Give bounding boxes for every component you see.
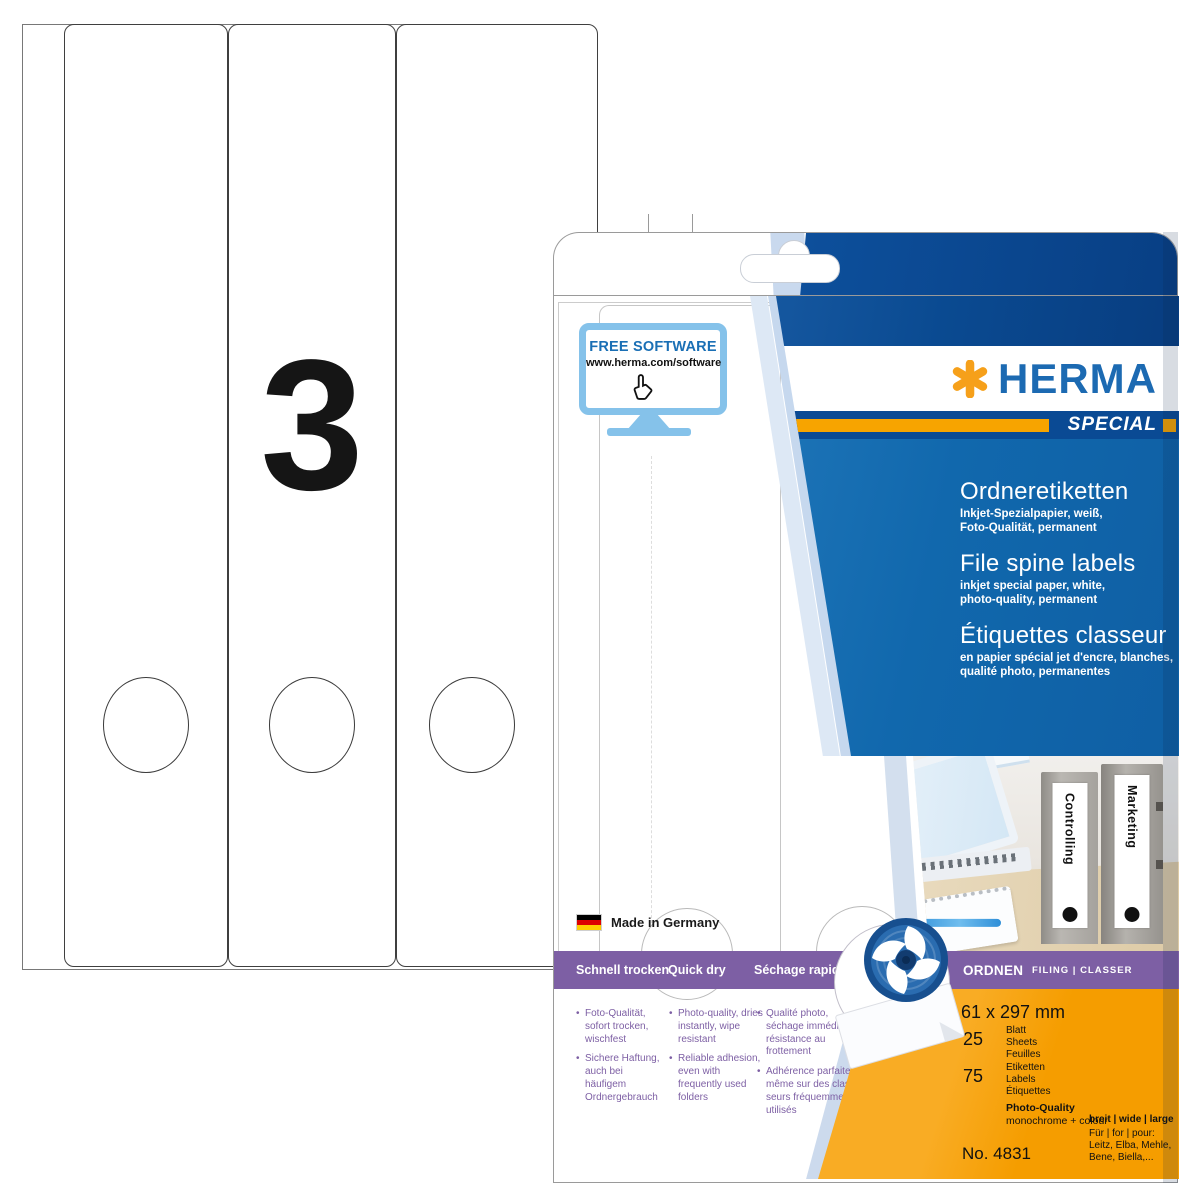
sheet-count: 25	[963, 1029, 983, 1050]
category-rest: FILING | CLASSER	[1032, 951, 1132, 989]
binder-marketing: Marketing	[1101, 764, 1163, 944]
quality-title: Photo-Quality	[1006, 1102, 1075, 1114]
paper-fold	[939, 1016, 964, 1041]
made-in-germany: Made in Germany	[576, 914, 719, 930]
photo-binders: Controlling Marketing	[1041, 764, 1163, 944]
binder-spine-text: Controlling	[1063, 793, 1077, 905]
hang-tab	[553, 232, 1178, 296]
brand-name: HERMA	[998, 358, 1157, 400]
label-sheet: 3	[22, 24, 564, 970]
label-count-label: Etiketten Labels Étiquettes	[1006, 1062, 1050, 1097]
bullets-en: Photo-quality, dries instantly, wipe res…	[669, 1008, 763, 1112]
inner-sheet-edge	[648, 214, 649, 232]
sheet-count-number: 3	[228, 333, 396, 519]
compatibility-info: Für | for | pour: Leitz, Elba, Mehle, Be…	[1089, 1128, 1171, 1165]
inner-sheet-edge	[692, 214, 693, 232]
width-info: breit | wide | large	[1089, 1114, 1174, 1125]
category-main: ORDNEN	[963, 951, 1023, 989]
subtitle-fr: en papier spécial jet d'encre, blanches,…	[960, 652, 1173, 680]
bullets-de: Foto-Qualität, sofort trocken, wischfest…	[576, 1008, 666, 1112]
tab-navy-panel	[554, 233, 1178, 296]
quickdry-fr: Séchage rapide	[754, 951, 846, 989]
binder-spine-dot	[1062, 907, 1077, 922]
binder-spine-dot	[1125, 907, 1140, 922]
binder-spine-text: Marketing	[1125, 785, 1139, 897]
subtitle-en: inkjet special paper, white, photo-quali…	[960, 580, 1173, 608]
quickdry-en: Quick dry	[668, 951, 726, 989]
inner-sheet-left-edge	[558, 302, 559, 953]
binder-slot	[1156, 802, 1163, 811]
free-software-title: FREE SOFTWARE	[586, 339, 720, 355]
subtitle-de: Inkjet-Spezialpapier, weiß, Foto-Qualitä…	[960, 508, 1173, 536]
quickdry-de: Schnell trocken	[576, 951, 669, 989]
herma-logo: HERMA	[951, 358, 1157, 400]
finger-hole-2	[269, 677, 355, 773]
label-size: 61 x 297 mm	[961, 1002, 1065, 1023]
bullet-item: Sichere Haftung, auch bei häufigem Ordne…	[576, 1053, 666, 1104]
made-in-germany-label: Made in Germany	[611, 915, 719, 930]
finger-hole-3	[429, 677, 515, 773]
monitor-base	[607, 428, 691, 436]
binder-spine-label: Controlling	[1052, 783, 1087, 928]
bullet-item: Reliable adhesion, even with frequently …	[669, 1053, 763, 1104]
binder-slot	[1156, 860, 1163, 869]
bullet-item: Photo-quality, dries instantly, wipe res…	[669, 1008, 763, 1046]
product-box: FREE SOFTWARE www.herma.com/software Mad…	[553, 232, 1178, 1183]
file-spine-label-1	[64, 24, 228, 967]
title-en: File spine labels	[960, 551, 1173, 576]
inner-sheet-fold-line	[651, 456, 653, 953]
bullet-item: Foto-Qualität, sofort trocken, wischfest	[576, 1008, 666, 1046]
title-de: Ordneretiketten	[960, 479, 1173, 504]
box-side-shading	[1163, 232, 1178, 1183]
hand-cursor-icon	[630, 374, 656, 409]
special-label: SPECIAL	[1068, 414, 1157, 436]
title-fr: Étiquettes classeur	[960, 623, 1173, 648]
fan-icon	[862, 916, 950, 1009]
product-shot: 3 FREE SOFTWARE www.herma.com/software	[0, 0, 1200, 1200]
finger-hole-1	[103, 677, 189, 773]
herma-asterisk-icon	[951, 360, 989, 398]
binder-controlling: Controlling	[1041, 772, 1098, 944]
order-number: No. 4831	[962, 1144, 1031, 1164]
box-body: FREE SOFTWARE www.herma.com/software Mad…	[553, 295, 1178, 1183]
euro-slot-hole	[740, 254, 840, 283]
binder-spine-label: Marketing	[1115, 775, 1150, 928]
free-software-url: www.herma.com/software	[586, 357, 720, 369]
label-count: 75	[963, 1066, 983, 1087]
german-flag-icon	[576, 914, 602, 931]
sheet-count-label: Blatt Sheets Feuilles	[1006, 1025, 1040, 1060]
